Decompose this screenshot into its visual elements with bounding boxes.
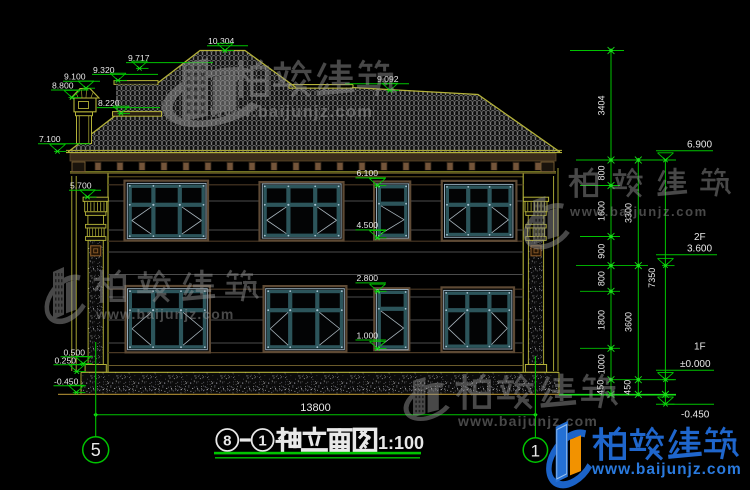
svg-text:5.700: 5.700: [70, 181, 92, 191]
svg-text:6.900: 6.900: [687, 140, 712, 151]
svg-text:www.baijunjz.com: www.baijunjz.com: [209, 103, 373, 121]
svg-text:1000: 1000: [597, 354, 607, 374]
svg-text:±0.000: ±0.000: [680, 359, 711, 370]
svg-text:3.600: 3.600: [687, 244, 712, 255]
svg-text:7.100: 7.100: [39, 134, 61, 144]
svg-text:900: 900: [597, 244, 607, 259]
svg-text:www.baijunjz.com: www.baijunjz.com: [569, 204, 708, 219]
svg-text:2F: 2F: [694, 232, 706, 243]
svg-text:8.800: 8.800: [52, 80, 74, 90]
svg-text:450: 450: [623, 380, 633, 395]
svg-text:5: 5: [91, 440, 101, 460]
svg-text:1F: 1F: [694, 341, 706, 352]
svg-text:www.baijunjz.com: www.baijunjz.com: [591, 461, 742, 478]
svg-text:www.baijunjz.com: www.baijunjz.com: [457, 413, 598, 429]
svg-text:10.304: 10.304: [208, 36, 235, 46]
svg-text:6.100: 6.100: [357, 168, 379, 178]
svg-text:1.000: 1.000: [357, 330, 379, 340]
svg-text:2.800: 2.800: [357, 273, 379, 283]
svg-text:1: 1: [531, 441, 540, 460]
svg-text:800: 800: [597, 271, 607, 286]
svg-text:www.baijunjz.com: www.baijunjz.com: [95, 306, 234, 322]
svg-text:1: 1: [258, 433, 266, 450]
svg-text:7350: 7350: [647, 268, 657, 288]
svg-text:-0.450: -0.450: [681, 410, 710, 421]
svg-text:4.500: 4.500: [357, 220, 379, 230]
svg-text:3404: 3404: [597, 95, 607, 115]
svg-text:8: 8: [223, 433, 231, 450]
svg-text:3600: 3600: [624, 312, 634, 332]
svg-text:13800: 13800: [300, 402, 331, 414]
svg-text:1800: 1800: [597, 310, 607, 330]
svg-text:0.250: 0.250: [55, 355, 77, 365]
svg-text:1:100: 1:100: [378, 433, 424, 453]
